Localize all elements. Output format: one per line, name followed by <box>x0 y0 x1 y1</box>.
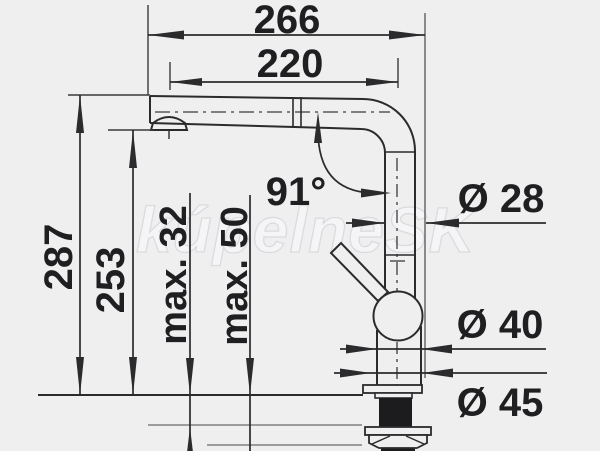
dim-max50-arrow-up <box>246 445 254 451</box>
dim-dia45-arrow-right <box>422 369 453 378</box>
dim-max32-arrow-down <box>186 358 194 395</box>
dim-266-arrow-right <box>389 31 425 40</box>
ball-joint <box>374 292 423 341</box>
dim-dia45-arrow-left <box>340 369 371 378</box>
dim-dia45-label: Ø 45 <box>457 381 544 425</box>
dim-dia-40: Ø 40 <box>340 303 546 354</box>
dim-dia-45: Ø 45 <box>334 369 547 426</box>
dim-max50-arrow-down <box>246 358 254 395</box>
dim-dia40-arrow-left <box>346 345 377 354</box>
threaded-rod <box>379 398 412 427</box>
dim-max50: max. 50 <box>214 195 256 451</box>
dim-266-label: 266 <box>254 0 321 42</box>
dim-266-arrow-left <box>148 31 184 40</box>
mounting-washer <box>365 427 431 435</box>
dim-253-label: 253 <box>89 247 133 314</box>
dim-287-label: 287 <box>37 224 81 291</box>
dim-dia28-label: Ø 28 <box>458 177 545 221</box>
dim-max50-label: max. 50 <box>214 206 256 345</box>
technical-drawing-sheet: kúpelneSK <box>0 0 600 451</box>
dim-max32-label: max. 32 <box>153 205 195 344</box>
dim-220: 220 <box>170 42 398 90</box>
dim-253-arrow-top <box>129 130 137 168</box>
dim-253-arrow-bottom <box>129 357 137 395</box>
dim-287-arrow-bottom <box>76 357 84 395</box>
base-flange-lip <box>375 393 412 398</box>
dim-dia40-label: Ø 40 <box>457 303 544 347</box>
base-flange <box>363 385 422 393</box>
dim-220-arrow-left <box>170 78 202 86</box>
dim-91-label: 91° <box>266 170 327 214</box>
drawing-canvas: kúpelneSK <box>0 0 600 451</box>
dim-287-arrow-top <box>76 95 84 133</box>
dim-max32-arrow-up <box>186 427 194 451</box>
dim-max32: max. 32 <box>153 193 195 451</box>
dim-220-arrow-right <box>366 78 398 86</box>
dim-220-label: 220 <box>257 42 324 86</box>
